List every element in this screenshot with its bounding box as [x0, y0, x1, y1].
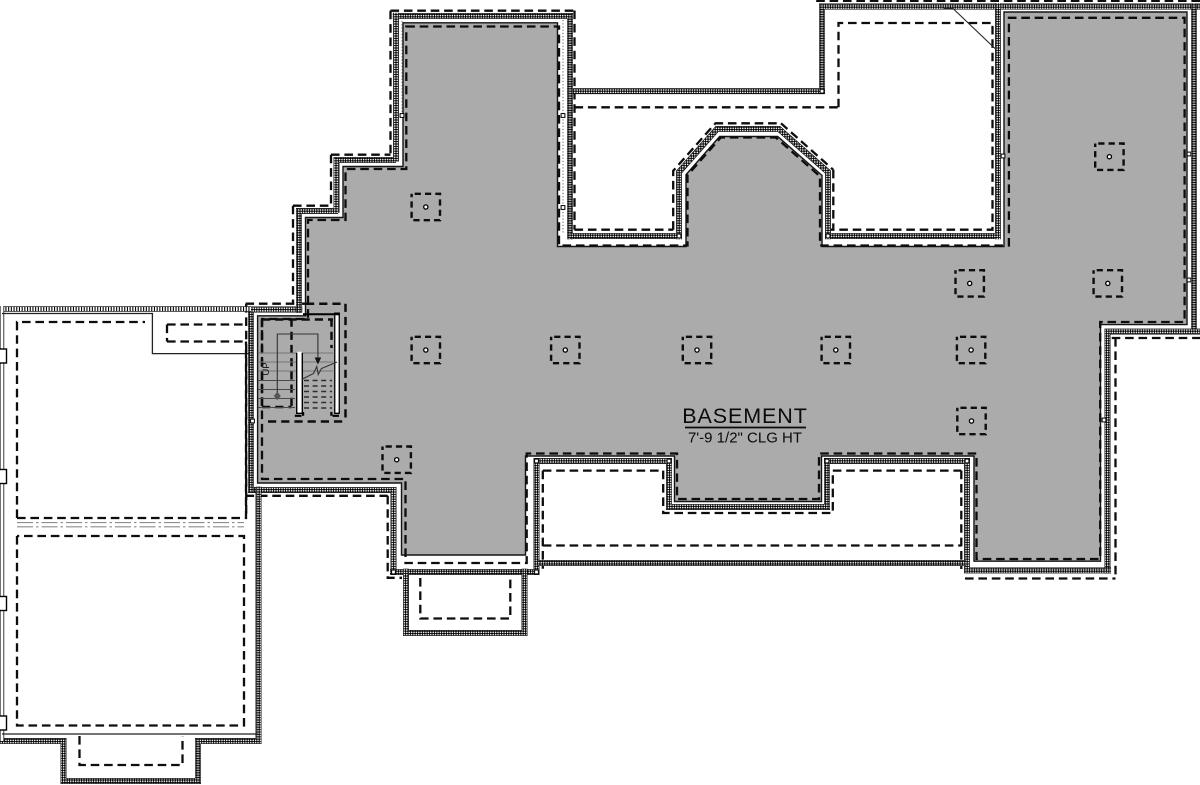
svg-text:7'-9 1/2" CLG HT: 7'-9 1/2" CLG HT: [688, 430, 802, 447]
svg-text:UP: UP: [261, 362, 272, 375]
svg-text:BASEMENT: BASEMENT: [682, 404, 807, 428]
